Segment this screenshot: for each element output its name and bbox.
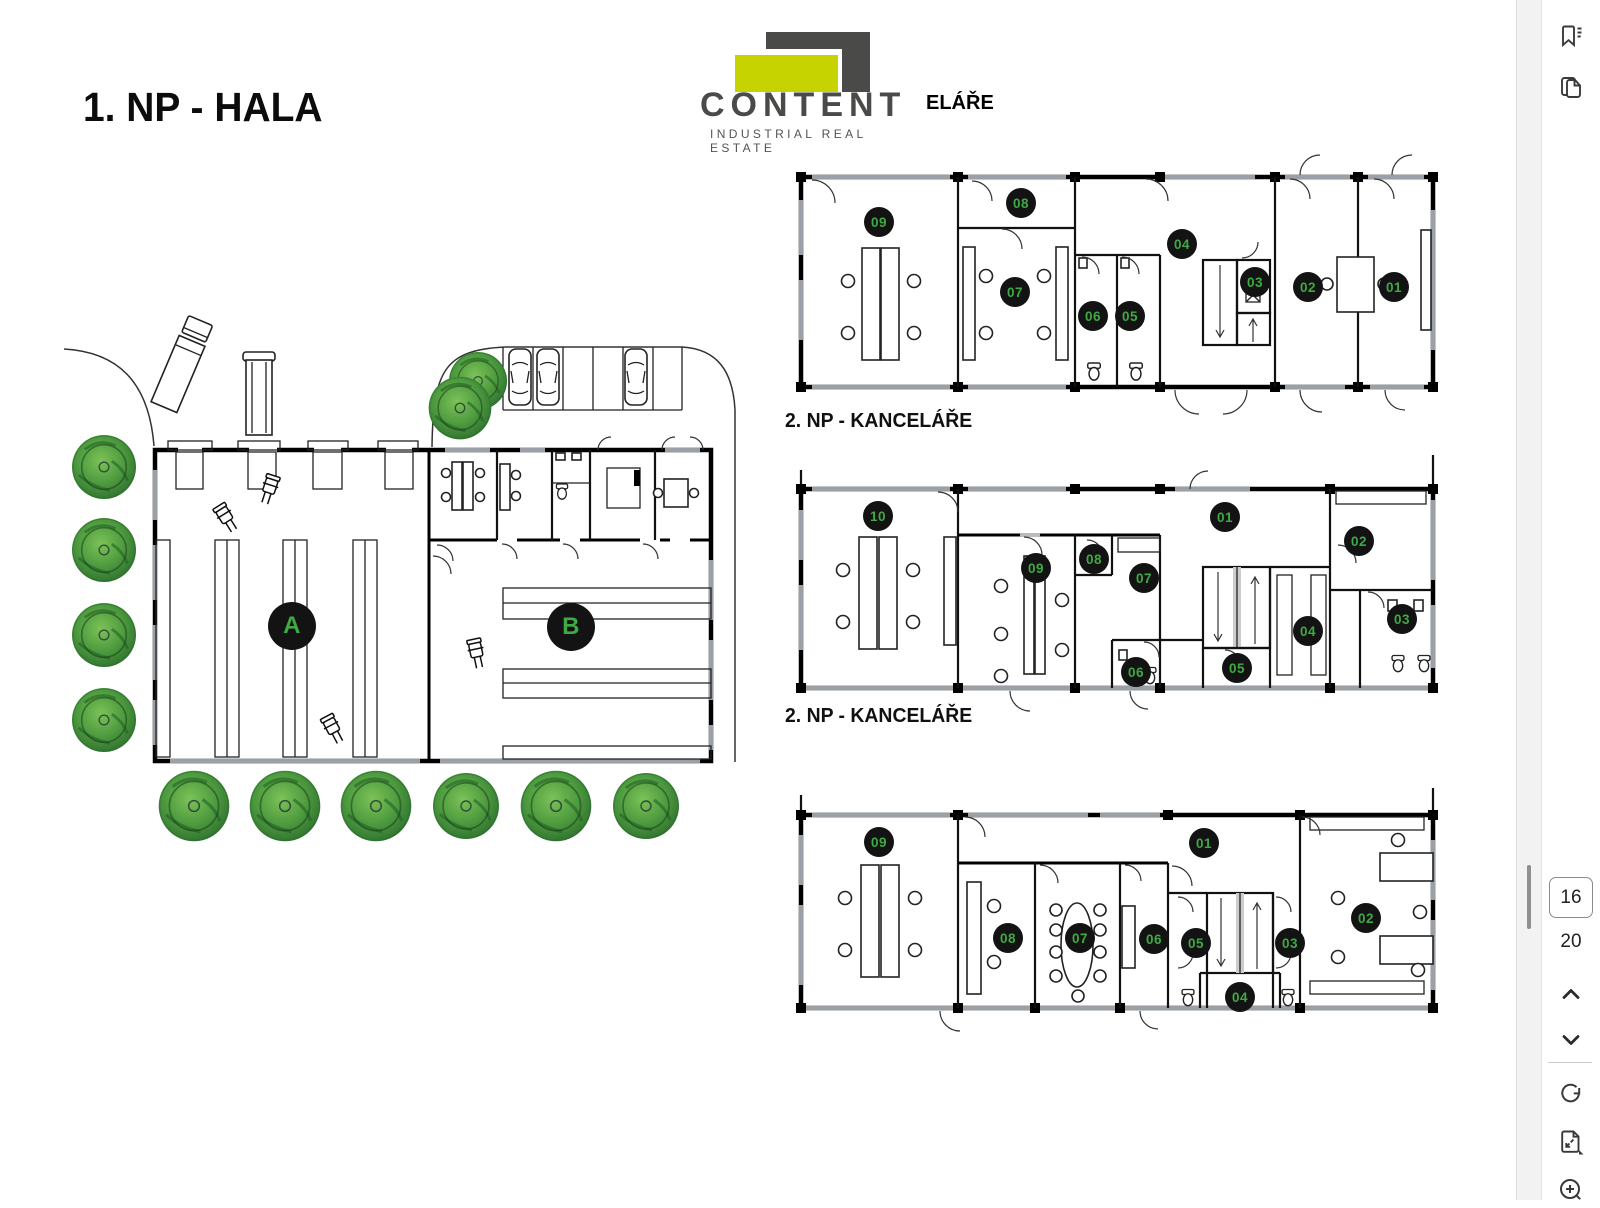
document-page: 1. NP - HALA CONTENT INDUSTRIAL REAL EST… (0, 0, 1517, 1200)
hall-section-badge-b: B (547, 603, 595, 651)
room-badge-p3-02: 02 (1351, 903, 1381, 933)
floor-plan-3 (796, 788, 1438, 1031)
room-badge-p1-09: 09 (864, 207, 894, 237)
hall-plan (155, 437, 711, 761)
page-thumbnails-button[interactable] (1553, 70, 1589, 106)
room-badge-p3-04: 04 (1225, 982, 1255, 1012)
room-badge-p2-06: 06 (1121, 657, 1151, 687)
bookmarks-button[interactable] (1553, 18, 1589, 54)
hall-section-badge-a: A (268, 602, 316, 650)
truck (151, 315, 214, 412)
floor-plan-drawing (0, 0, 1516, 1200)
room-badge-p3-03: 03 (1275, 928, 1305, 958)
chevron-up-icon (1557, 980, 1585, 1008)
trailer (243, 352, 275, 435)
toolbar-divider (1548, 1062, 1592, 1063)
bookmarks-icon (1557, 22, 1585, 50)
zoom-in-icon (1556, 1175, 1586, 1205)
room-badge-p1-04: 04 (1167, 229, 1197, 259)
viewer-toolbar: 20 (1542, 0, 1600, 1200)
room-badge-p3-08: 08 (993, 923, 1023, 953)
room-badge-p1-06: 06 (1078, 301, 1108, 331)
forklift (319, 713, 347, 746)
page-thumbnails-icon (1557, 74, 1585, 102)
room-badge-p1-08: 08 (1006, 188, 1036, 218)
room-badge-p2-04: 04 (1293, 616, 1323, 646)
room-badge-p2-01: 01 (1210, 502, 1240, 532)
room-badge-p2-05: 05 (1222, 653, 1252, 683)
room-badge-p3-07: 07 (1065, 923, 1095, 953)
total-pages: 20 (1560, 931, 1581, 953)
room-badge-p2-07: 07 (1129, 563, 1159, 593)
room-badge-p1-05: 05 (1115, 301, 1145, 331)
room-badge-p2-10: 10 (863, 501, 893, 531)
room-badge-p1-03: 03 (1240, 267, 1270, 297)
pdf-viewer: 1. NP - HALA CONTENT INDUSTRIAL REAL EST… (0, 0, 1600, 1200)
room-badge-p2-02: 02 (1344, 526, 1374, 556)
room-badge-p3-06: 06 (1139, 924, 1169, 954)
room-badge-p3-09: 09 (864, 827, 894, 857)
trees (72, 352, 679, 841)
room-badge-p2-08: 08 (1079, 544, 1109, 574)
parked-cars (509, 349, 647, 405)
room-badge-p3-05: 05 (1181, 928, 1211, 958)
room-badge-p1-07: 07 (1000, 277, 1030, 307)
forklift (212, 502, 241, 535)
page-number-input[interactable] (1549, 877, 1593, 918)
zoom-in-button[interactable] (1553, 1172, 1589, 1208)
floor-plan-2 (796, 455, 1438, 711)
room-badge-p2-09: 09 (1021, 553, 1051, 583)
fit-to-page-button[interactable] (1553, 1124, 1589, 1160)
room-badge-p1-02: 02 (1293, 272, 1323, 302)
rotate-button[interactable] (1553, 1078, 1589, 1114)
room-badge-p1-01: 01 (1379, 272, 1409, 302)
scrollbar-track[interactable] (1517, 0, 1542, 1200)
chevron-down-icon (1557, 1026, 1585, 1054)
room-badge-p3-01: 01 (1189, 828, 1219, 858)
rotate-clockwise-icon (1556, 1081, 1586, 1111)
fit-to-page-icon (1556, 1127, 1586, 1157)
site-roads (64, 347, 735, 762)
scrollbar-thumb[interactable] (1527, 865, 1531, 929)
next-page-button[interactable] (1553, 1022, 1589, 1058)
forklift (466, 638, 488, 670)
floor-plan-1 (796, 155, 1438, 414)
hall-office-strip (429, 437, 711, 561)
hall-section-a-racks (156, 540, 377, 757)
previous-page-button[interactable] (1553, 976, 1589, 1012)
room-badge-p2-03: 03 (1387, 604, 1417, 634)
